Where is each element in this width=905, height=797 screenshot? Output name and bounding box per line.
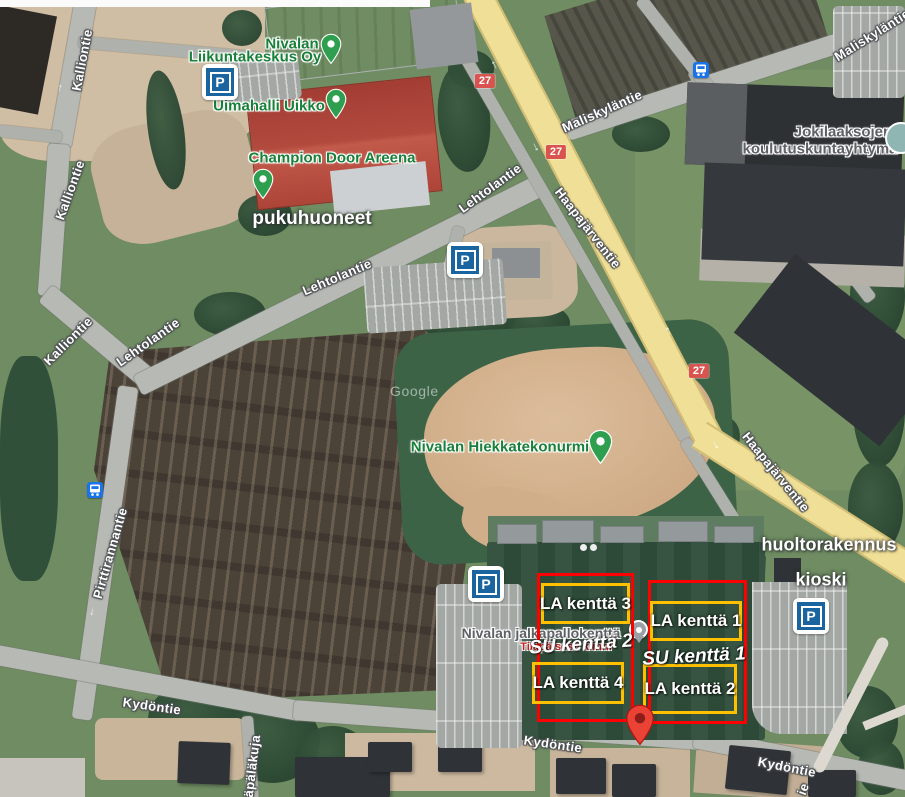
poi-label-koulutus-line2[interactable]: koulutuskuntayhtymä — [742, 141, 897, 158]
poi-label-liikuntakeskus-line2[interactable]: Liikuntakeskus Oy — [189, 49, 322, 66]
satellite-map[interactable]: ↑ ↑ ↑ ↑ ↑ ↑ Kalliontie Kalliontie Kallio… — [0, 0, 905, 797]
building-gray-wing — [410, 2, 479, 69]
bus-glyph — [693, 62, 709, 78]
field-box-la1: LA kenttä 1 — [650, 601, 742, 641]
field-label-la3: LA kenttä 3 — [540, 594, 631, 614]
shed — [600, 526, 644, 543]
parking-icon[interactable]: P — [793, 598, 829, 634]
annotation-kioski: kioski — [795, 570, 846, 591]
parking-icon-letter: P — [801, 606, 822, 627]
field-box-la3: LA kenttä 3 — [541, 583, 630, 624]
green-pin-uimahalli[interactable] — [325, 88, 347, 125]
tree — [222, 10, 262, 46]
parking-icon[interactable]: P — [447, 242, 483, 278]
tank-circle — [590, 544, 597, 551]
parking-icon-letter: P — [476, 574, 497, 595]
field-box-la4: LA kenttä 4 — [532, 662, 624, 704]
parking-icon-inner: P — [797, 602, 825, 630]
poi-label-champion-door-areena[interactable]: Champion Door Areena — [249, 150, 416, 167]
parking-icon-letter: P — [455, 250, 476, 271]
parking-icon-inner: P — [451, 246, 479, 274]
annotation-pukuhuoneet: pukuhuoneet — [252, 208, 371, 230]
screenshot-edge — [0, 0, 430, 7]
field-box-la2: LA kenttä 2 — [643, 664, 737, 714]
green-pin-hiekkatekonurmi[interactable] — [588, 429, 613, 470]
route-27-badge: 27 — [475, 74, 495, 88]
house — [368, 742, 412, 772]
shed — [542, 520, 594, 543]
tank-circle — [580, 544, 587, 551]
house — [612, 764, 656, 797]
red-dropped-pin[interactable] — [625, 704, 655, 751]
field-label-la1: LA kenttä 1 — [651, 611, 742, 631]
shed — [714, 526, 754, 543]
terrain-gray-bottomleft — [0, 758, 85, 797]
parking-icon[interactable]: P — [202, 64, 238, 100]
route-27-badge: 27 — [689, 364, 709, 378]
parking-icon-inner: P — [472, 570, 500, 598]
green-pin-champion[interactable] — [252, 168, 274, 205]
parking-lot-fields-west — [436, 584, 522, 748]
poi-label-uimahalli[interactable]: Uimahalli Uikko — [213, 98, 325, 115]
annotation-huoltorakennus: huoltorakennus — [761, 535, 896, 556]
poi-label-koulutus-line1[interactable]: Jokilaaksojen — [794, 124, 892, 141]
route-27-badge: 27 — [546, 145, 566, 159]
field-label-la2: LA kenttä 2 — [645, 679, 736, 699]
house — [556, 758, 606, 794]
building-arena-wing — [330, 161, 430, 215]
parking-icon[interactable]: P — [468, 566, 504, 602]
shed — [658, 521, 708, 542]
building-campus-2 — [701, 163, 905, 267]
terrain-forest-left — [0, 356, 58, 581]
bus-stop-icon[interactable] — [87, 482, 103, 498]
bus-glyph — [87, 482, 103, 498]
green-pin-liikuntakeskus[interactable] — [320, 33, 342, 70]
poi-label-hiekkatekonurmi[interactable]: Nivalan Hiekkatekonurmi — [411, 439, 589, 456]
shed — [497, 524, 537, 544]
house — [177, 741, 230, 785]
bus-stop-icon[interactable] — [693, 62, 709, 78]
parking-icon-inner: P — [206, 68, 234, 96]
parking-icon-letter: P — [210, 72, 231, 93]
parking-lot-lehtolantie — [363, 258, 507, 334]
field-label-la4: LA kenttä 4 — [533, 673, 624, 693]
google-watermark: Google — [390, 383, 439, 399]
